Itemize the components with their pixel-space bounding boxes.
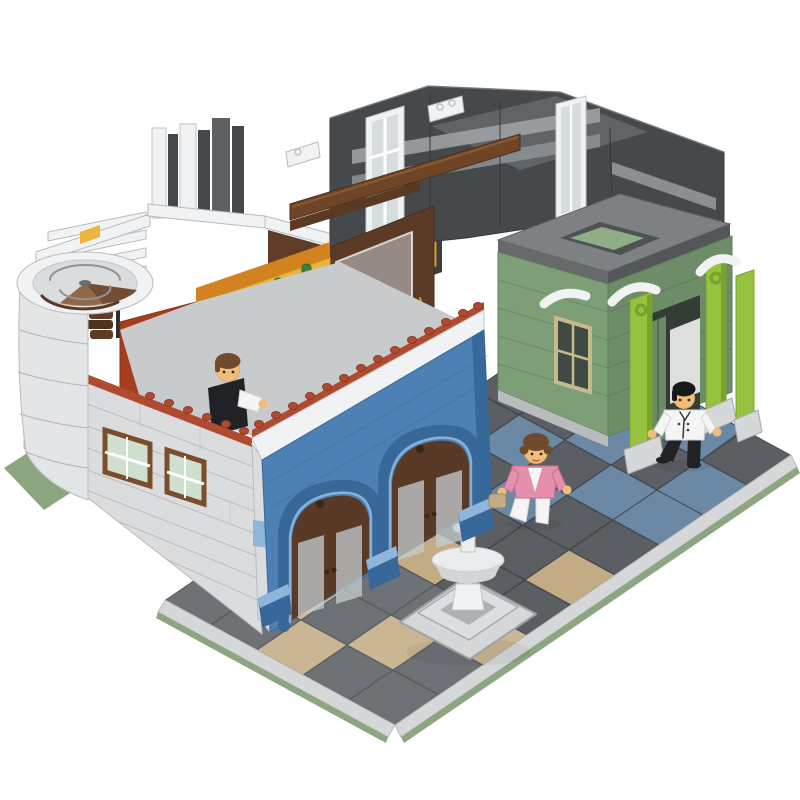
rear-window-frame [556, 96, 586, 222]
lime-pillar-front-right [706, 258, 726, 422]
wall-window-2 [167, 450, 204, 504]
arch1-glass-right [336, 525, 362, 604]
arch2-glass-left [398, 480, 424, 560]
green-window [556, 318, 590, 392]
arch2-lamp [416, 445, 424, 453]
man-hand-left [648, 430, 657, 439]
dark-slab-stack [152, 118, 244, 218]
corner-blue-patch [253, 520, 265, 548]
lego-modular-building-photo [0, 0, 800, 800]
woman-leg-right [536, 496, 550, 524]
spiral-staircase [17, 252, 153, 314]
man-hand-right [713, 428, 722, 437]
arch1-lamp [316, 500, 324, 508]
man-leg-right [687, 438, 701, 464]
product-photo-canvas [0, 0, 800, 800]
man-shoe-left [656, 457, 670, 464]
man-shoe-right [687, 462, 701, 469]
woman-shadow [508, 518, 562, 530]
terrace-figure-hand [259, 400, 268, 409]
woman-purse [489, 494, 506, 508]
lime-pillar-side [736, 270, 754, 430]
woman-hand-right [563, 486, 572, 495]
fountain-pedestal [452, 584, 484, 610]
spiral-center-post [79, 280, 91, 286]
arch1-glass-left [298, 535, 324, 616]
man-torso [664, 410, 706, 440]
arch2-glass-right [436, 470, 462, 548]
